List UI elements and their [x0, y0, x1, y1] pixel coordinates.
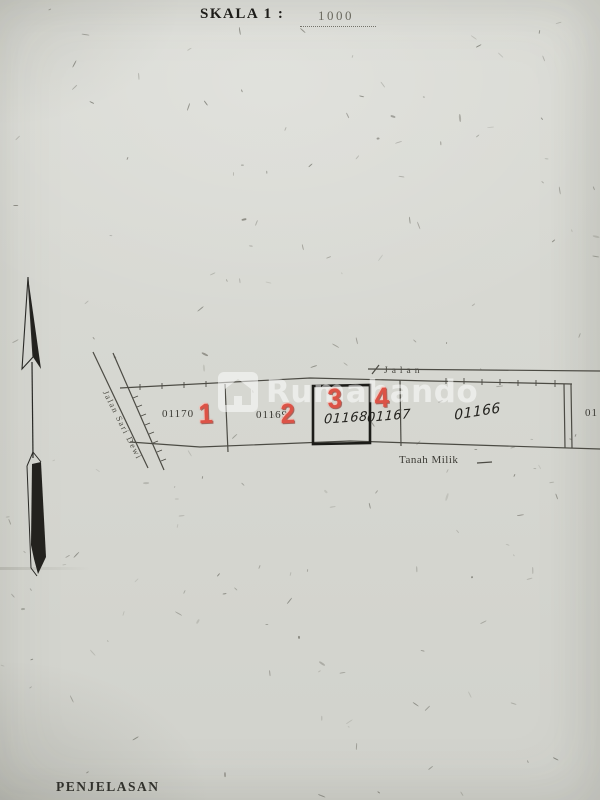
- north-arrow-head-outline: [22, 277, 33, 369]
- north-arrow-tail-ribbon: [31, 462, 46, 574]
- lot-number-stamp-2: 2: [280, 400, 295, 429]
- top-road-line: [368, 369, 600, 371]
- road-and-boundary-lines: [93, 352, 600, 470]
- north-arrow-shaft: [32, 362, 33, 458]
- divider-01166-right: [564, 384, 572, 448]
- north-arrow-icon: [22, 277, 46, 576]
- scanned-site-plan-page: SKALA 1 : 1000: [0, 0, 600, 800]
- divider-01170-01169: [225, 384, 228, 452]
- road-hatch-ticks: [133, 396, 166, 461]
- parcel-map-drawing: [0, 0, 600, 800]
- divider-01167-01166: [400, 380, 401, 446]
- lot-number-stamp-3: 3: [327, 385, 342, 414]
- lot-number-stamp-1: 1: [198, 400, 213, 429]
- lot-number-stamp-4: 4: [374, 384, 389, 413]
- tanah-milik-dash: [477, 462, 492, 463]
- north-arrow-head-fill: [28, 277, 41, 369]
